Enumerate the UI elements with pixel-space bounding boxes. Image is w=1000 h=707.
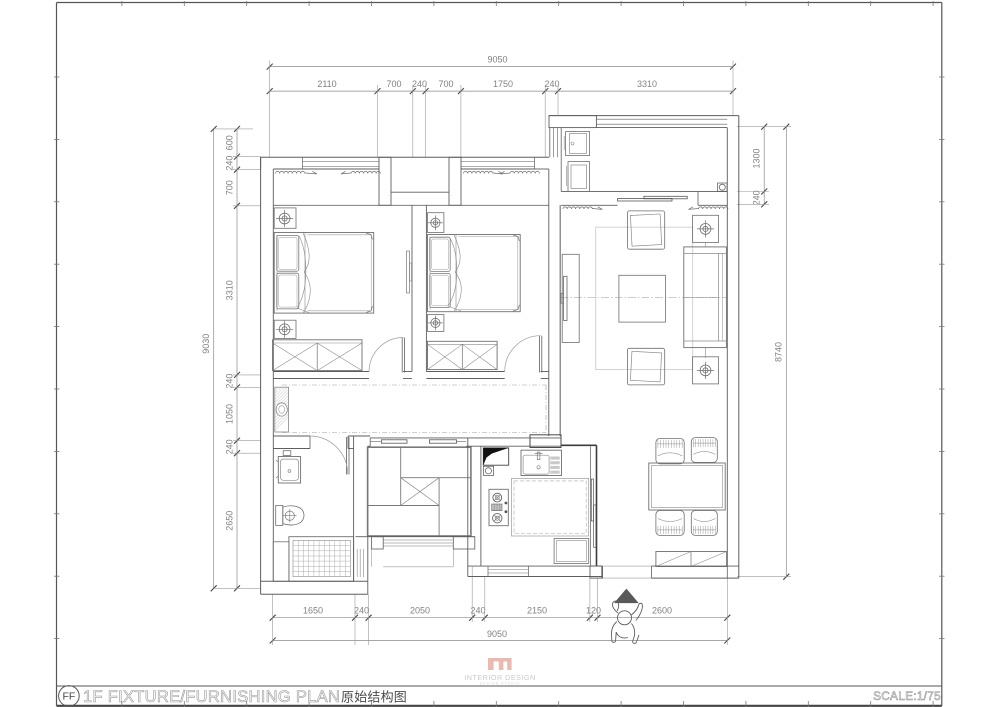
svg-text:2150: 2150 xyxy=(527,606,547,616)
svg-text:240: 240 xyxy=(412,79,427,89)
svg-text:3310: 3310 xyxy=(225,280,235,300)
svg-text:9030: 9030 xyxy=(201,334,211,354)
svg-text:700: 700 xyxy=(386,79,401,89)
svg-text:3310: 3310 xyxy=(637,79,657,89)
svg-text:1050: 1050 xyxy=(225,404,235,424)
svg-text:1300: 1300 xyxy=(752,148,762,168)
svg-text:FF: FF xyxy=(62,691,75,703)
svg-text:240: 240 xyxy=(354,606,369,616)
svg-text:2110: 2110 xyxy=(317,79,336,89)
svg-text:1650: 1650 xyxy=(303,606,323,616)
svg-text:2650: 2650 xyxy=(225,511,235,531)
svg-text:原始结构图: 原始结构图 xyxy=(341,689,407,704)
svg-text:600: 600 xyxy=(225,135,235,150)
svg-text:SCALE:1/75: SCALE:1/75 xyxy=(873,689,941,703)
svg-text:240: 240 xyxy=(225,374,235,389)
svg-text:240: 240 xyxy=(752,190,762,205)
svg-text:1750: 1750 xyxy=(493,79,513,89)
svg-text:240: 240 xyxy=(544,79,559,89)
svg-text:DESIGN STUDIO: DESIGN STUDIO xyxy=(480,682,521,686)
svg-text:240: 240 xyxy=(470,606,485,616)
svg-text:8740: 8740 xyxy=(774,342,784,362)
svg-text:700: 700 xyxy=(438,79,453,89)
svg-text:240: 240 xyxy=(225,439,235,454)
svg-text:240: 240 xyxy=(225,156,235,171)
svg-text:2600: 2600 xyxy=(652,606,672,616)
svg-text:9050: 9050 xyxy=(487,629,507,639)
svg-text:9050: 9050 xyxy=(487,55,507,65)
svg-text:1F FIXTURE/FURNISHING PLAN: 1F FIXTURE/FURNISHING PLAN xyxy=(83,688,340,706)
svg-text:700: 700 xyxy=(225,180,235,195)
svg-text:120: 120 xyxy=(586,606,601,616)
svg-text:2050: 2050 xyxy=(410,606,430,616)
